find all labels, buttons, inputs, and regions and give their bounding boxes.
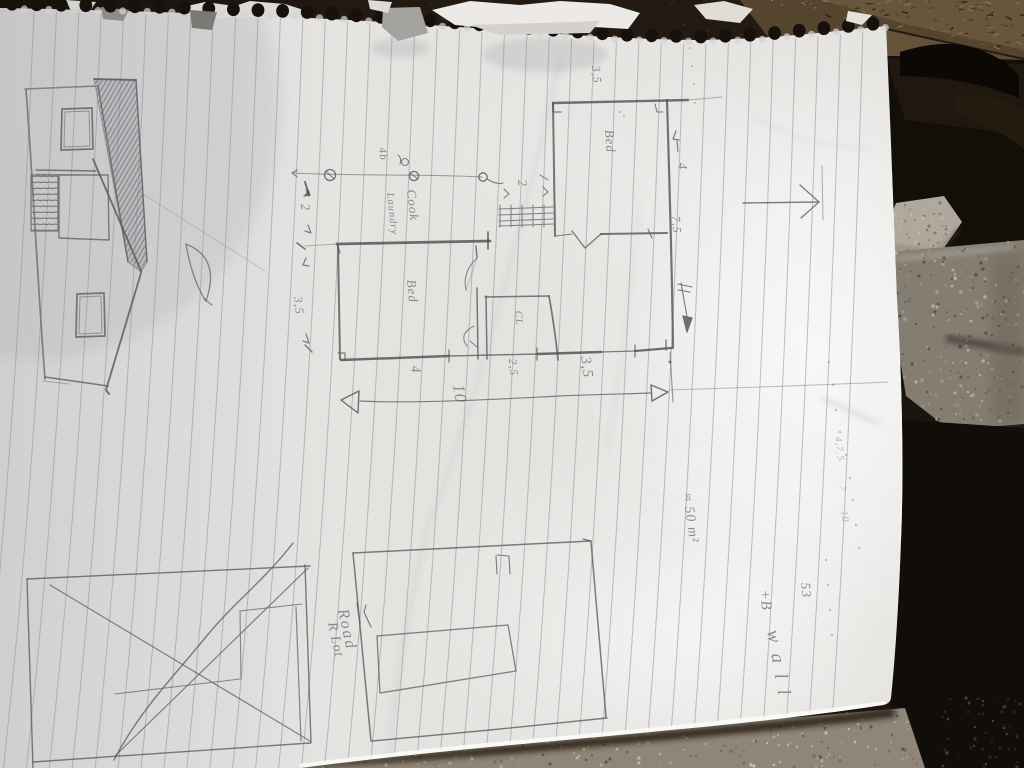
svg-text:2,5: 2,5: [506, 358, 519, 376]
svg-text:3,5: 3,5: [291, 295, 307, 315]
svg-text:53: 53: [798, 582, 815, 599]
svg-text:3,5: 3,5: [589, 64, 605, 84]
svg-text:2: 2: [515, 179, 531, 188]
svg-text:3,5: 3,5: [577, 355, 596, 380]
svg-text:CL: CL: [512, 310, 524, 326]
svg-text:10: 10: [449, 383, 470, 404]
svg-text:Bed: Bed: [404, 279, 421, 303]
svg-text:7,5: 7,5: [669, 215, 684, 234]
svg-text:2: 2: [298, 203, 314, 212]
svg-text:10: 10: [838, 510, 850, 523]
svg-text:4b: 4b: [376, 147, 389, 161]
svg-text:4: 4: [407, 365, 423, 374]
svg-text:+B: +B: [756, 589, 774, 612]
svg-text:4: 4: [675, 162, 690, 171]
svg-text:Bed: Bed: [602, 129, 619, 153]
